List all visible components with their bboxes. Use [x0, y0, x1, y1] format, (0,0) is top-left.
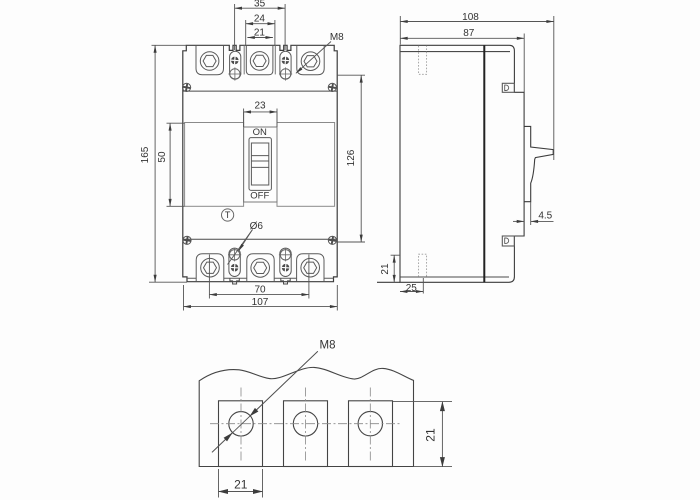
- svg-text:24: 24: [254, 14, 266, 25]
- svg-text:165: 165: [140, 146, 151, 163]
- svg-text:Ø6: Ø6: [250, 221, 264, 232]
- svg-text:126: 126: [346, 149, 357, 166]
- svg-text:T: T: [225, 210, 231, 220]
- svg-text:21: 21: [254, 28, 266, 39]
- svg-text:107: 107: [252, 297, 269, 308]
- svg-text:87: 87: [463, 28, 475, 39]
- svg-text:ON: ON: [253, 127, 267, 138]
- svg-text:OFF: OFF: [250, 190, 269, 201]
- svg-text:4.5: 4.5: [538, 211, 552, 222]
- svg-text:50: 50: [157, 151, 168, 163]
- svg-text:25: 25: [406, 283, 418, 294]
- svg-text:M8: M8: [330, 32, 344, 43]
- svg-text:35: 35: [254, 0, 266, 10]
- svg-text:21: 21: [380, 263, 391, 275]
- svg-text:23: 23: [254, 101, 266, 112]
- svg-text:21: 21: [424, 428, 438, 442]
- svg-text:M8: M8: [320, 340, 336, 352]
- svg-text:70: 70: [254, 285, 266, 296]
- svg-text:21: 21: [234, 477, 248, 491]
- svg-text:108: 108: [462, 12, 479, 23]
